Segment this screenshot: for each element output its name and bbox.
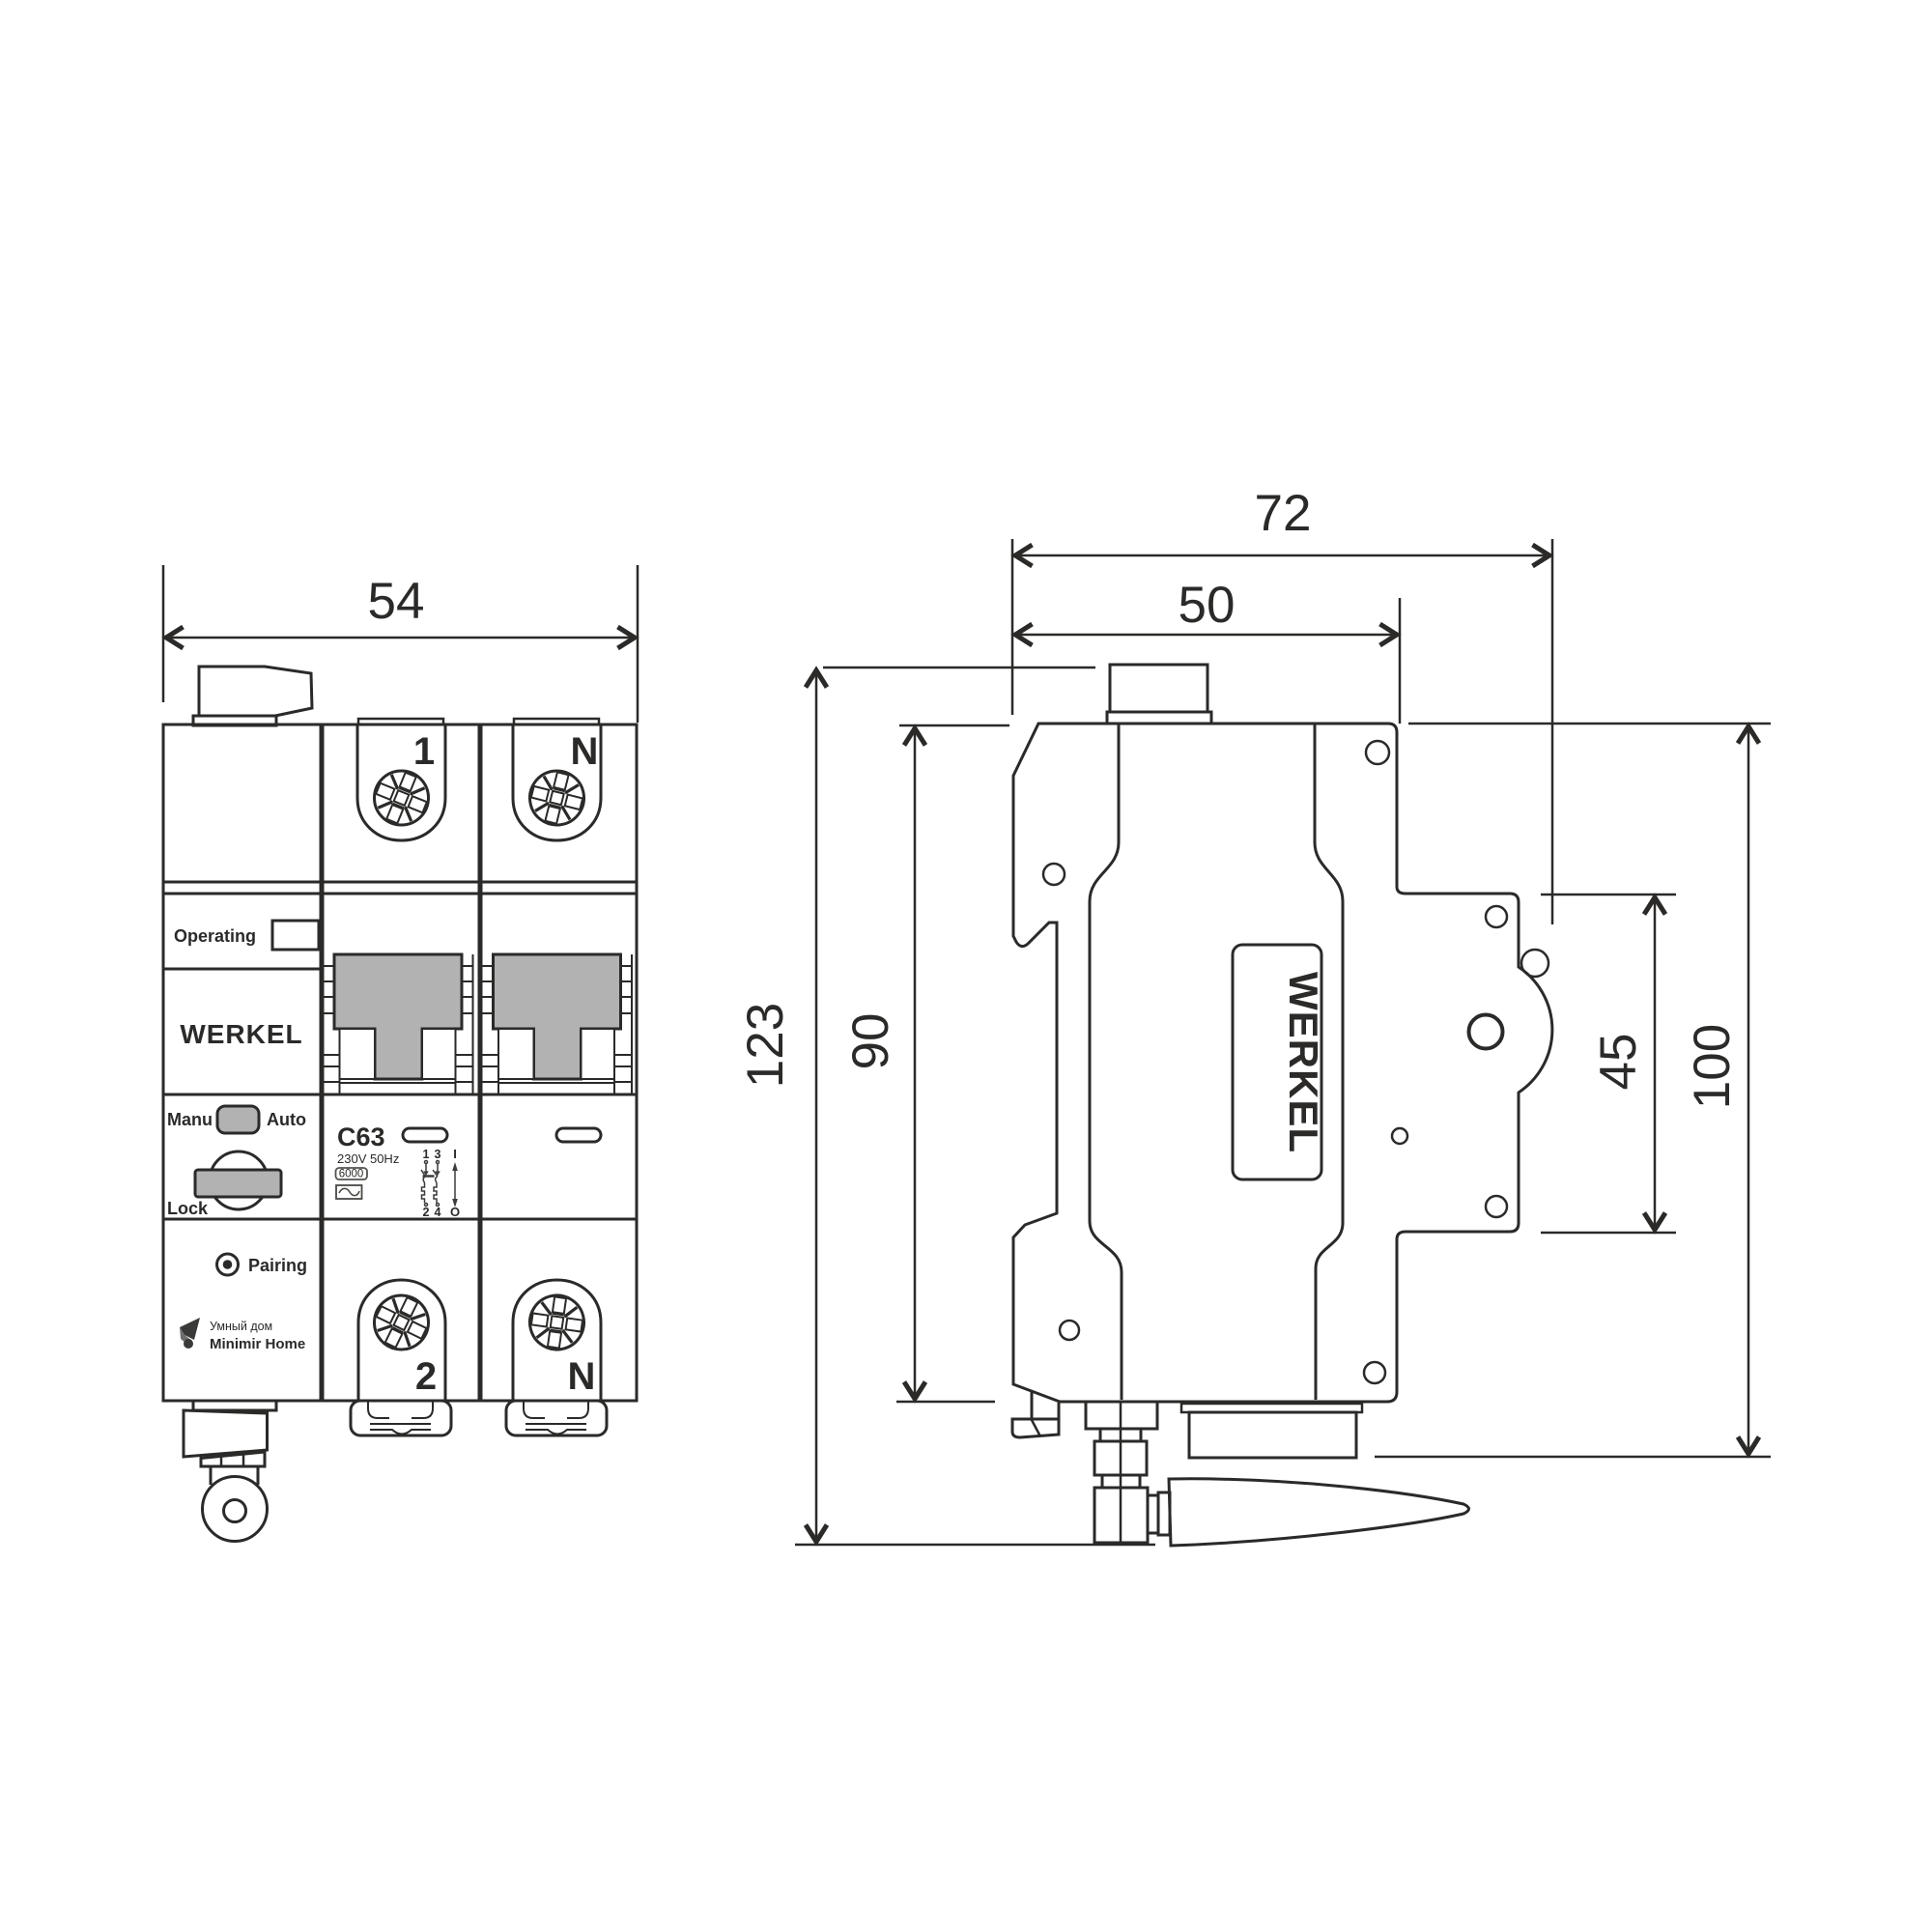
svg-text:2: 2 [423, 1206, 430, 1219]
svg-text:O: O [450, 1205, 460, 1219]
svg-text:WERKEL: WERKEL [1281, 972, 1326, 1153]
svg-text:N: N [568, 1355, 596, 1398]
svg-text:4: 4 [435, 1206, 441, 1219]
svg-text:123: 123 [737, 1003, 794, 1088]
svg-text:C63: C63 [337, 1122, 385, 1151]
svg-text:230V 50Hz: 230V 50Hz [337, 1151, 399, 1166]
svg-text:Operating: Operating [174, 926, 256, 946]
svg-text:90: 90 [842, 1013, 899, 1070]
svg-text:2: 2 [415, 1355, 437, 1398]
svg-text:N: N [571, 730, 599, 773]
svg-text:3: 3 [435, 1148, 441, 1161]
svg-text:54: 54 [368, 573, 425, 630]
svg-text:1: 1 [413, 730, 435, 773]
svg-text:Manu: Manu [167, 1110, 213, 1129]
svg-text:45: 45 [1590, 1034, 1647, 1091]
svg-text:50: 50 [1179, 577, 1236, 634]
svg-text:Auto: Auto [267, 1110, 306, 1129]
svg-text:Умный дом: Умный дом [210, 1320, 272, 1333]
svg-text:1: 1 [423, 1148, 430, 1161]
svg-text:Pairing: Pairing [248, 1256, 307, 1275]
svg-text:Minimir Home: Minimir Home [210, 1336, 305, 1352]
svg-text:WERKEL: WERKEL [180, 1019, 302, 1049]
svg-text:6000: 6000 [339, 1169, 364, 1180]
svg-text:100: 100 [1684, 1024, 1741, 1109]
svg-text:Lock: Lock [167, 1199, 209, 1218]
svg-text:72: 72 [1255, 485, 1312, 542]
svg-text:I: I [453, 1147, 457, 1161]
